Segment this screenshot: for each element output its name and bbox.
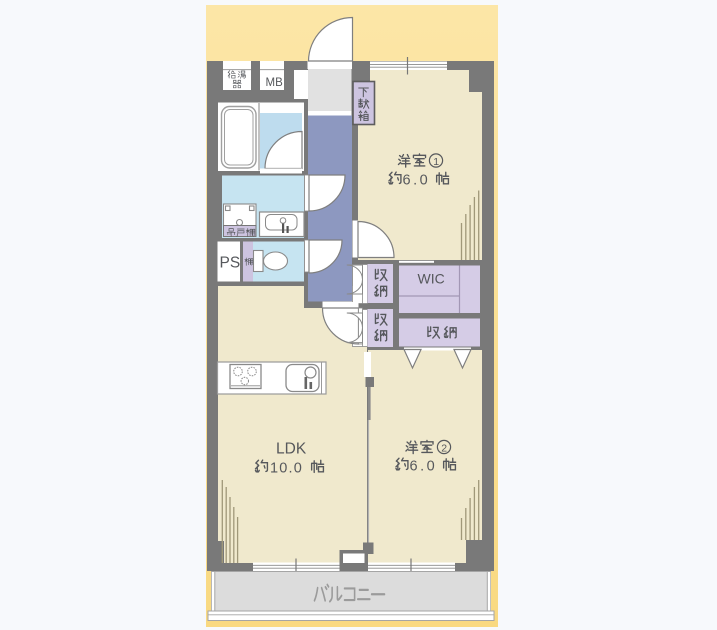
svg-text:LDK: LDK [276, 441, 307, 458]
svg-text:PS: PS [220, 255, 241, 272]
svg-text:2: 2 [441, 443, 447, 455]
svg-text:MB: MB [266, 77, 284, 89]
svg-text:10.0: 10.0 [270, 461, 303, 477]
svg-text:WIC: WIC [418, 271, 445, 287]
svg-text:6.0: 6.0 [410, 459, 438, 475]
svg-text:1: 1 [433, 156, 439, 168]
svg-text:6.0: 6.0 [403, 173, 431, 189]
